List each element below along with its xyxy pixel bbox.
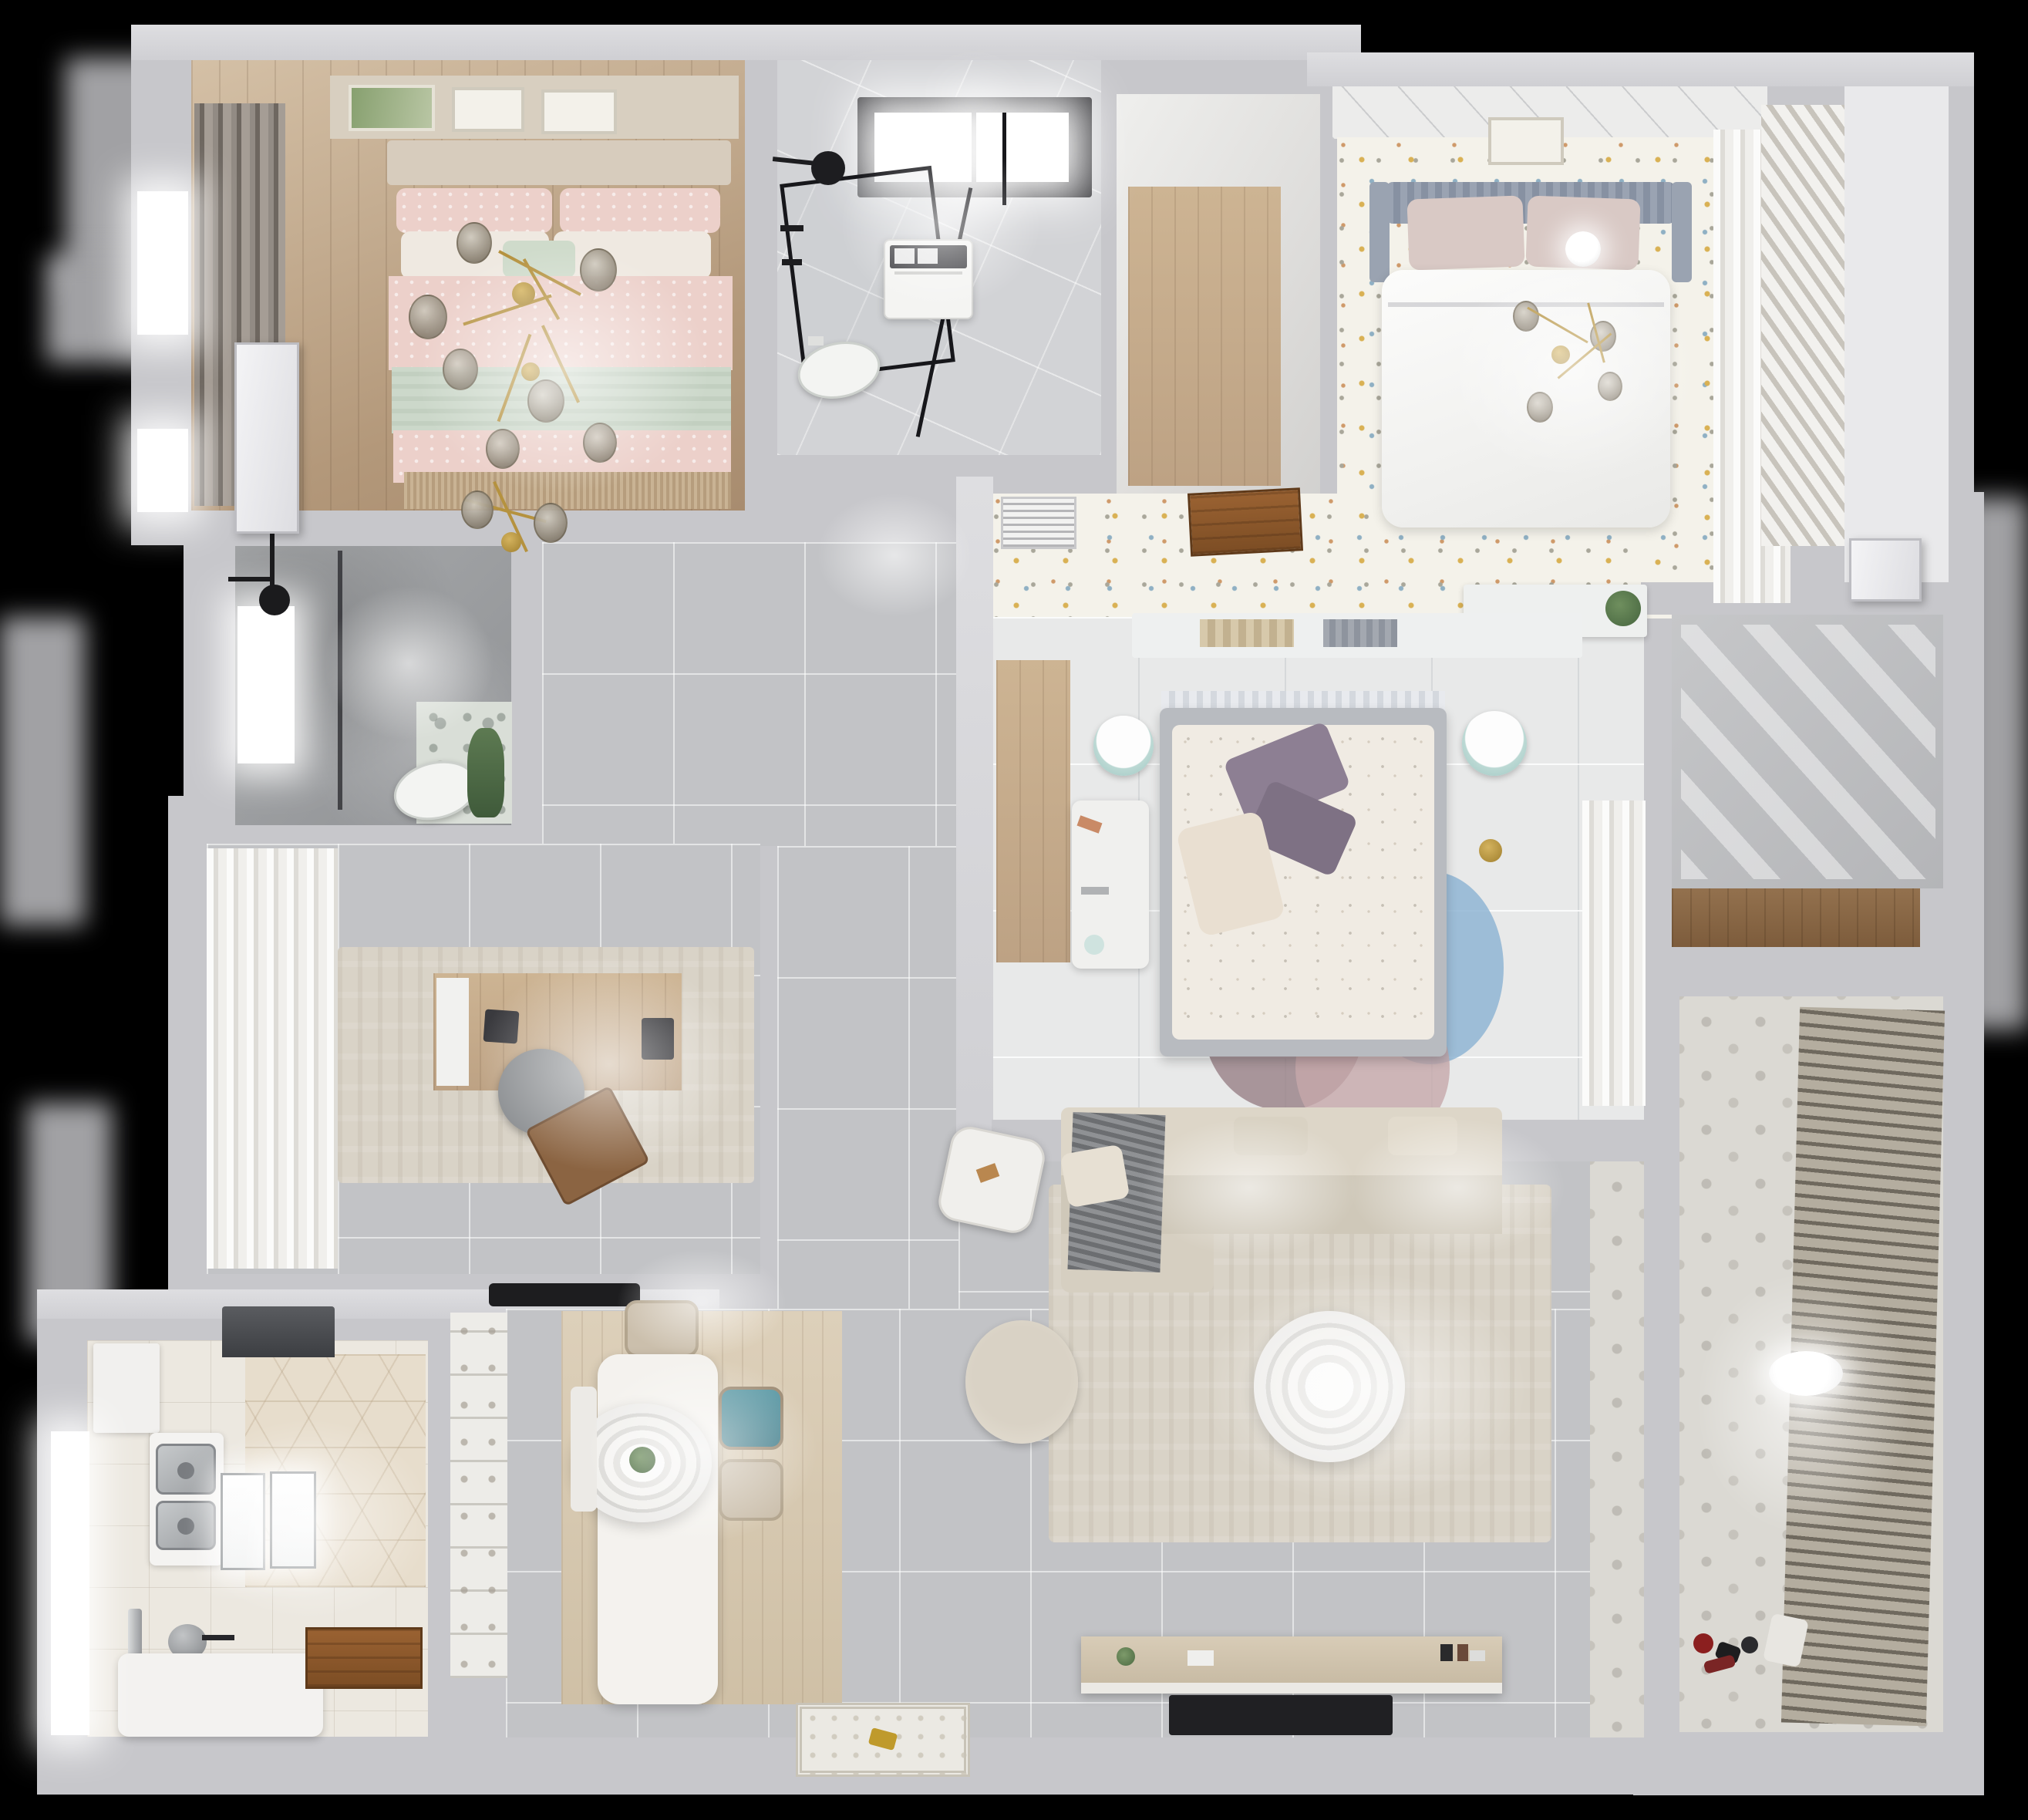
plant-bedroom-tr [1605, 591, 1641, 626]
chandelier-bulb-1 [456, 222, 492, 264]
console-bottle-2 [1457, 1644, 1468, 1661]
tap-spout [202, 1635, 234, 1640]
shower-pipe-top [1002, 113, 1006, 205]
pillow-pink-2 [560, 188, 720, 233]
console-box [1187, 1650, 1214, 1666]
door-white-tr [1849, 538, 1922, 602]
shower-head-left [259, 585, 290, 615]
chandelier-bulb-9 [534, 503, 568, 543]
chandelier-knot-2 [521, 362, 540, 381]
armchair-living [965, 1320, 1078, 1444]
books-on-shelf-1 [1200, 619, 1294, 647]
ac-vent [1001, 497, 1076, 549]
chandelier-bulb-3 [580, 248, 617, 292]
wall-art-frame3 [541, 89, 617, 134]
window-tl-2 [137, 429, 188, 512]
shower-arm-left [228, 577, 270, 581]
shower-valve-1 [780, 225, 803, 231]
toy-black-2 [1741, 1636, 1758, 1653]
chandelier-tr-bulb1 [1513, 301, 1539, 332]
sink-drain-1 [177, 1462, 194, 1479]
chandelier-tr-bulb4 [1598, 372, 1622, 401]
floorplan-canvas [0, 0, 2028, 1820]
chandelier-bulb-7 [583, 423, 617, 463]
niche-wood-shelf [1672, 888, 1920, 947]
frame-bedroom-tr [1488, 117, 1564, 165]
slat-screen-tr [1761, 105, 1844, 546]
chandelier-bulb-8 [461, 490, 494, 529]
washer-panel-sq2 [918, 248, 938, 264]
cushion-sofa-2 [1234, 1117, 1308, 1155]
chandelier-knot-1 [512, 282, 535, 305]
gold-sprig-center [1479, 839, 1502, 862]
floor-closet-wood [1128, 187, 1281, 486]
bedframe-rail-right [1672, 182, 1692, 282]
chandelier-bulb-4 [443, 349, 478, 390]
open-wood-door [1187, 487, 1303, 557]
desk-study-panel [436, 978, 469, 1086]
washer-door-line [894, 271, 962, 275]
wall-art-frame2 [452, 87, 524, 132]
curtain-study [207, 848, 338, 1269]
floor-walkway-strip [1590, 1160, 1644, 1737]
console-tray [1470, 1650, 1485, 1661]
desk-item-tray [1081, 887, 1109, 895]
window-tl-1 [137, 191, 188, 335]
chair-dining-beige2 [719, 1459, 783, 1521]
pantry-cabinet [450, 1313, 507, 1678]
wall-top-north2 [771, 25, 1361, 60]
light-streaks-flex [1681, 625, 1935, 879]
faucet-kitchen [128, 1609, 142, 1658]
wall-bathroom-br-north [1641, 947, 1982, 996]
wall-top-north3 [1307, 52, 1974, 86]
ceiling-light-bathroom-br [1769, 1351, 1843, 1396]
console-bottle-1 [1440, 1644, 1453, 1661]
bench-dining-left [571, 1387, 597, 1512]
wall-art-green [349, 85, 435, 131]
chair-dining-teal [719, 1387, 783, 1450]
island-panel-2 [270, 1471, 316, 1569]
curtain-bedroom-center [1582, 800, 1646, 1106]
tub-block-kitchen [118, 1653, 323, 1737]
toy-red-1 [1693, 1633, 1713, 1653]
tv-console [1081, 1636, 1502, 1694]
shower-head-top [811, 151, 845, 185]
nightstand-lamp-right [1462, 711, 1527, 776]
chandelier-tr-knot [1551, 345, 1570, 364]
bedframe-rail-left [1369, 182, 1390, 282]
console-plant [1117, 1647, 1135, 1666]
floor-hallway-upper [542, 542, 958, 846]
nightstand-lamp-left [1093, 716, 1154, 776]
sink-drain-2 [177, 1518, 194, 1535]
tv-flat [1169, 1695, 1393, 1735]
pillow-blush-1 [1406, 195, 1524, 270]
washer-panel-sq1 [894, 248, 915, 264]
tablet-study [642, 1018, 674, 1060]
wall-band-exterior-tr [1844, 81, 1949, 590]
books-on-shelf-2 [1323, 619, 1397, 647]
range-hood [222, 1306, 335, 1357]
desk-item-cup [1084, 935, 1104, 955]
chandelier-tr-bulb3 [1527, 392, 1553, 423]
door-white-left [234, 342, 299, 534]
cushion-sofa-3 [1388, 1117, 1457, 1155]
chandelier-bulb-6 [486, 429, 520, 469]
pillow-white-2 [554, 231, 711, 279]
shower-glass-left [338, 551, 342, 810]
laptop-study [483, 1009, 520, 1044]
coffee-table-round [1254, 1311, 1405, 1462]
island-panel-1 [221, 1473, 265, 1570]
toilet-top-button [808, 336, 824, 345]
wood-door-kitchen [305, 1627, 423, 1689]
plant-shower-room [467, 728, 504, 817]
bed-tl-rug-fringe [404, 472, 731, 509]
floor-hallway-mid [777, 846, 958, 1309]
wardrobe-niche-wood [996, 660, 1070, 962]
wall-corridor-bedroom [956, 477, 993, 1160]
chandelier-bulb-2 [409, 295, 447, 339]
chair-dining-top [625, 1300, 699, 1357]
headboard-tl [387, 140, 731, 185]
outer-shadow-left [0, 617, 85, 925]
window-kitchen [51, 1431, 89, 1735]
ball-lamp-tr [1565, 231, 1601, 267]
wall-top-north1 [131, 25, 806, 60]
wall-flex-north [1641, 582, 1982, 615]
chandelier-knot-3 [501, 532, 521, 552]
stool-square-hallway [935, 1123, 1048, 1236]
cushion-sofa-1 [1060, 1144, 1130, 1208]
skylight-pane-2 [976, 113, 1069, 182]
door-mat-study [489, 1283, 640, 1306]
cabinet-kitchen-tl [93, 1343, 160, 1433]
plant-dining-table [629, 1447, 655, 1473]
chandelier-bulb-5 [527, 379, 564, 423]
shower-valve-2 [782, 259, 802, 265]
window-shower [237, 606, 295, 763]
